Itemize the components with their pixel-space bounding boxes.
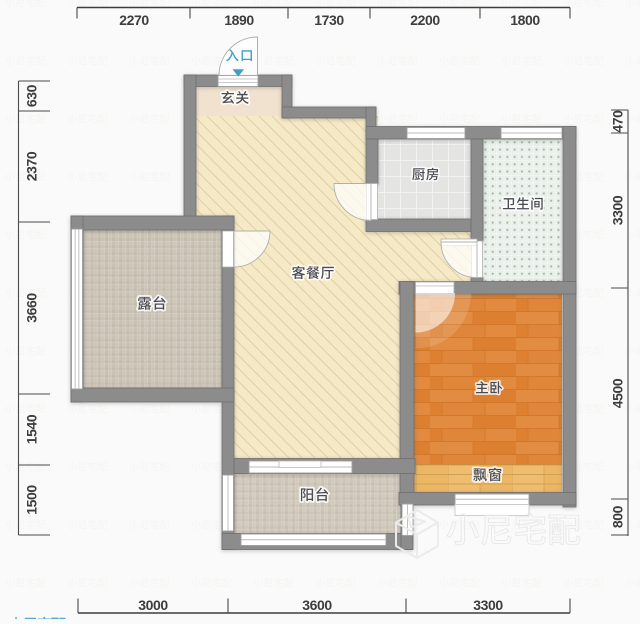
svg-text:630: 630 <box>24 84 40 107</box>
svg-text:1540: 1540 <box>24 414 40 444</box>
svg-text:3600: 3600 <box>302 597 332 613</box>
svg-text:4500: 4500 <box>610 378 626 408</box>
svg-text:3000: 3000 <box>138 597 168 613</box>
svg-text:3300: 3300 <box>473 597 503 613</box>
svg-text:1500: 1500 <box>24 485 40 515</box>
svg-text:800: 800 <box>610 505 626 528</box>
svg-text:3300: 3300 <box>610 195 626 225</box>
svg-text:2370: 2370 <box>24 151 40 181</box>
svg-text:2200: 2200 <box>410 12 440 28</box>
svg-text:3660: 3660 <box>24 293 40 323</box>
svg-text:470: 470 <box>610 110 626 133</box>
svg-text:1800: 1800 <box>510 12 540 28</box>
svg-text:1890: 1890 <box>224 12 254 28</box>
svg-text:2270: 2270 <box>119 12 149 28</box>
svg-text:1730: 1730 <box>314 12 344 28</box>
